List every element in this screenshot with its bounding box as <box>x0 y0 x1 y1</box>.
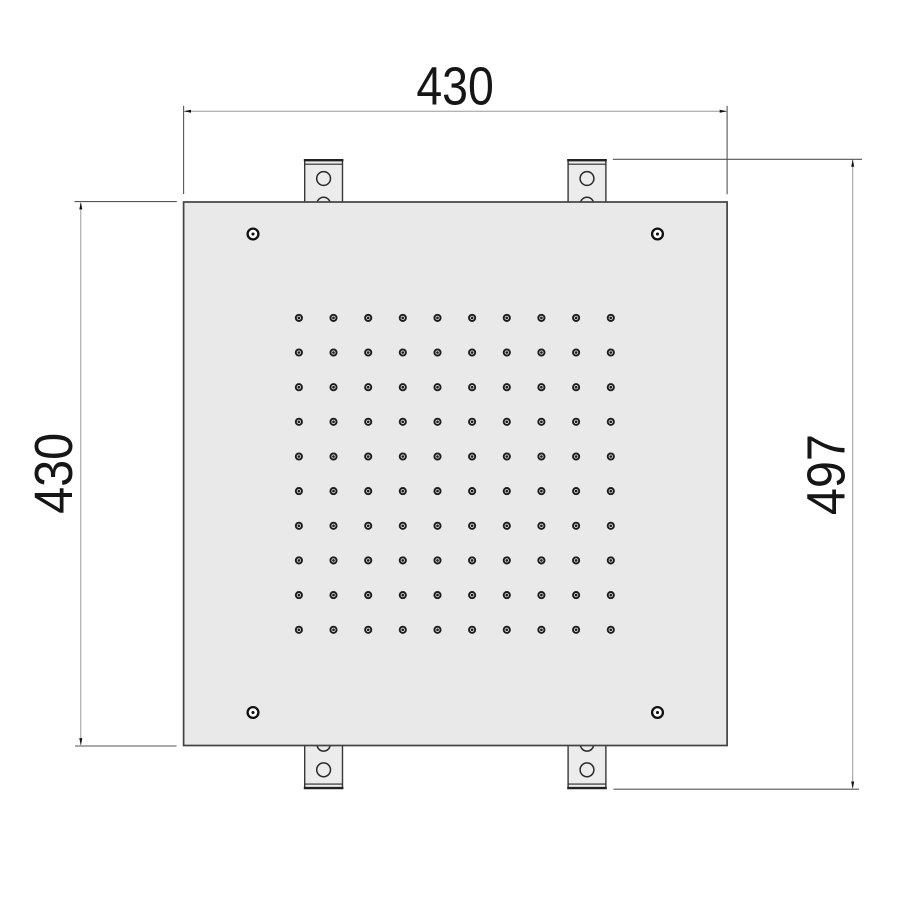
svg-text:430: 430 <box>416 55 493 116</box>
svg-text:430: 430 <box>23 433 84 514</box>
svg-text:497: 497 <box>795 434 856 515</box>
